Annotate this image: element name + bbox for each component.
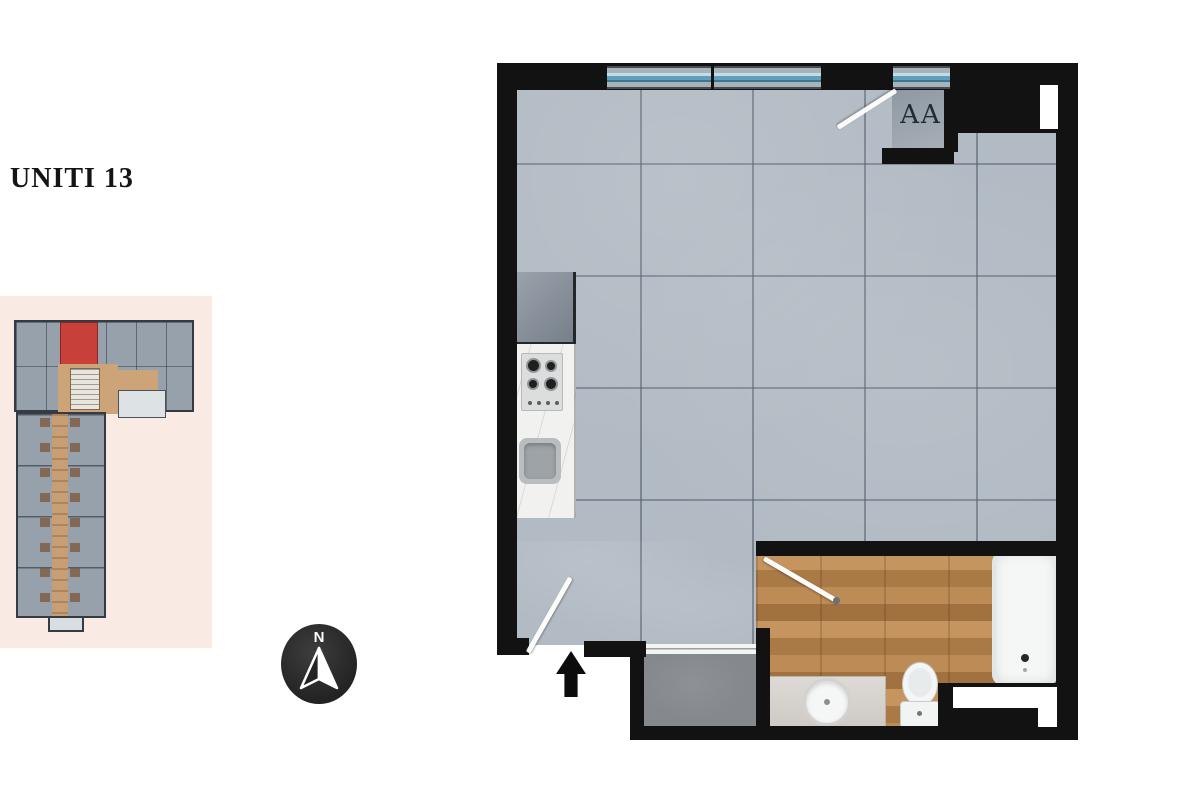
wall-bathroom-top: [756, 541, 1058, 556]
north-arrow-icon: [281, 624, 357, 704]
compass: N: [281, 624, 357, 704]
stove-knob: [546, 401, 550, 405]
bathtub-drain: [1021, 654, 1029, 662]
mini-building-wing: [16, 412, 106, 618]
stove-cooktop: [521, 353, 563, 411]
toilet: [902, 662, 938, 706]
mini-building-top-block: [14, 320, 194, 412]
main-room-floor: [517, 88, 1058, 541]
bathroom-door-handle: [833, 597, 840, 604]
bathtub-overflow: [1023, 668, 1027, 672]
mini-light-room: [118, 390, 166, 418]
window-3: [893, 66, 950, 89]
kitchen-sink: [519, 438, 561, 484]
burner-icon: [527, 378, 539, 390]
mini-highlighted-unit: [60, 322, 98, 366]
mini-floorplan: [0, 296, 212, 648]
right-wall-niche: [1040, 85, 1058, 129]
wall-bottom-left-stub: [497, 638, 529, 655]
bottom-right-niche-vertical: [1038, 687, 1057, 727]
window-glass: [607, 73, 711, 82]
burner-icon: [545, 360, 557, 372]
kitchen-sink-basin: [524, 443, 556, 479]
wall-left: [497, 63, 517, 655]
wall-terrace-bottom: [630, 726, 772, 740]
window-1: [607, 66, 711, 89]
unit-title: UNITI 13: [10, 163, 134, 195]
window-2: [714, 66, 821, 89]
wall-right: [1056, 63, 1078, 740]
main-room-floor-lower: [517, 541, 756, 645]
wall-closet-bottom: [882, 148, 954, 164]
sliding-door-track: [644, 644, 756, 654]
mini-furniture-left: [40, 418, 50, 612]
kitchen-cabinet: [516, 272, 576, 344]
closet-label: AA: [890, 100, 952, 130]
mini-corridor-lobby: [58, 364, 118, 414]
stove-knob: [555, 401, 559, 405]
entry-arrow-icon: [556, 651, 586, 697]
stove-knob: [528, 401, 532, 405]
floorplan-page: UNITI 13 N: [0, 0, 1200, 800]
mini-wing-corridor: [52, 414, 68, 616]
mini-stairs: [70, 368, 100, 410]
mini-corridor-arm: [118, 370, 158, 390]
burner-icon: [526, 358, 541, 373]
toilet-bowl: [908, 668, 932, 697]
window-glass: [714, 73, 821, 82]
wall-bathroom-left: [756, 628, 770, 740]
window-glass: [893, 73, 950, 82]
vanity-drain: [824, 699, 830, 705]
bathtub: [992, 551, 1058, 686]
toilet-flush-button: [917, 711, 922, 716]
stove-knob: [537, 401, 541, 405]
terrace-floor: [644, 650, 756, 726]
burner-icon: [544, 377, 558, 391]
mini-furniture-right: [70, 418, 80, 612]
mini-stair-stub: [48, 616, 84, 632]
